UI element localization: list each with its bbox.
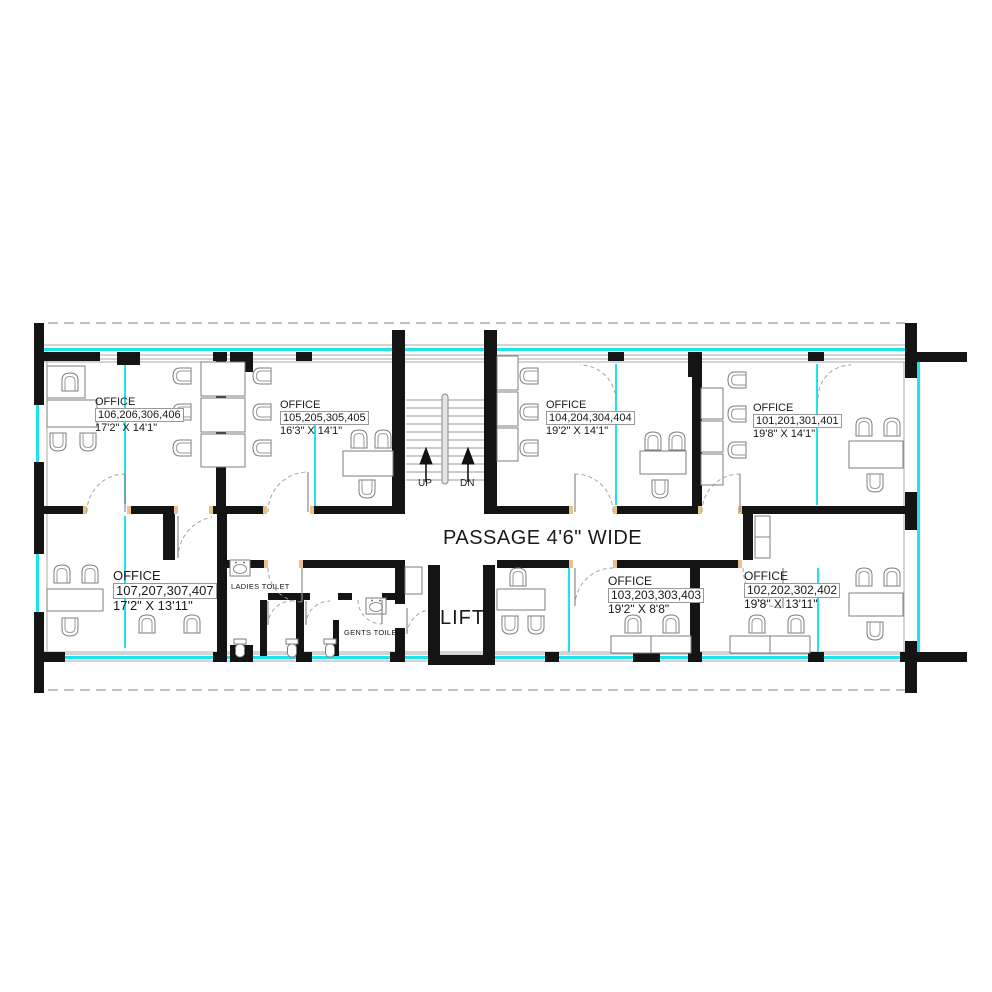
office-size: 16'3" X 14'1" <box>280 425 369 437</box>
office-label-106: OFFICE 106,206,306,406 17'2" X 14'1" <box>95 396 184 434</box>
office-title: OFFICE <box>753 402 842 414</box>
stairs-up-arrow <box>420 448 432 482</box>
office-title: OFFICE <box>280 399 369 411</box>
stairs-dn-label: DN <box>460 478 474 489</box>
office-label-102: OFFICE 102,202,302,402 19'8" X 13'11" <box>744 570 840 611</box>
office-label-101: OFFICE 101,201,301,401 19'8" X 14'1" <box>753 402 842 440</box>
office-size: 19'8" X 13'11" <box>744 598 840 611</box>
office-label-107: OFFICE 107,207,307,407 17'2" X 13'11" <box>113 569 217 613</box>
floor-plan-page: OFFICE 106,206,306,406 17'2" X 14'1" OFF… <box>0 0 992 992</box>
office-numbers: 101,201,301,401 <box>753 414 842 428</box>
office-label-105: OFFICE 105,205,305,405 16'3" X 14'1" <box>280 399 369 437</box>
lobby-duct <box>405 567 422 594</box>
office-label-104: OFFICE 104,204,304,404 19'2" X 14'1" <box>546 399 635 437</box>
floor-plan-drawing <box>0 0 992 992</box>
gents-toilet-label: GENTS TOILET <box>344 628 402 637</box>
office-numbers: 104,204,304,404 <box>546 411 635 425</box>
office-numbers: 103,203,303,403 <box>608 588 704 603</box>
office-title: OFFICE <box>608 575 704 588</box>
door-jambs <box>83 506 742 568</box>
office-size: 19'8" X 14'1" <box>753 428 842 440</box>
stair-railing <box>442 394 448 484</box>
office-numbers: 102,202,302,402 <box>744 583 840 598</box>
office-label-103: OFFICE 103,203,303,403 19'2" X 8'8" <box>608 575 704 616</box>
office-size: 17'2" X 14'1" <box>95 422 184 434</box>
office-size: 17'2" X 13'11" <box>113 599 217 613</box>
office-title: OFFICE <box>546 399 635 411</box>
staircase <box>406 394 484 484</box>
stairs-dn-arrow <box>462 448 474 482</box>
ladies-washbasin <box>230 560 250 576</box>
office-size: 19'2" X 8'8" <box>608 603 704 616</box>
office-numbers: 107,207,307,407 <box>113 583 217 599</box>
gents-washbasin <box>366 598 386 614</box>
office-title: OFFICE <box>744 570 840 583</box>
toilet-fixtures <box>230 560 386 657</box>
office-title: OFFICE <box>95 396 184 408</box>
stairs-up-label: UP <box>418 478 432 489</box>
office-numbers: 105,205,305,405 <box>280 411 369 425</box>
office-title: OFFICE <box>113 569 217 583</box>
lift-label: LIFT <box>440 607 485 630</box>
office-numbers: 106,206,306,406 <box>95 408 184 422</box>
office-size: 19'2" X 14'1" <box>546 425 635 437</box>
passage-label: PASSAGE 4'6" WIDE <box>443 527 642 550</box>
ladies-toilet-label: LADIES TOILET <box>231 582 290 591</box>
